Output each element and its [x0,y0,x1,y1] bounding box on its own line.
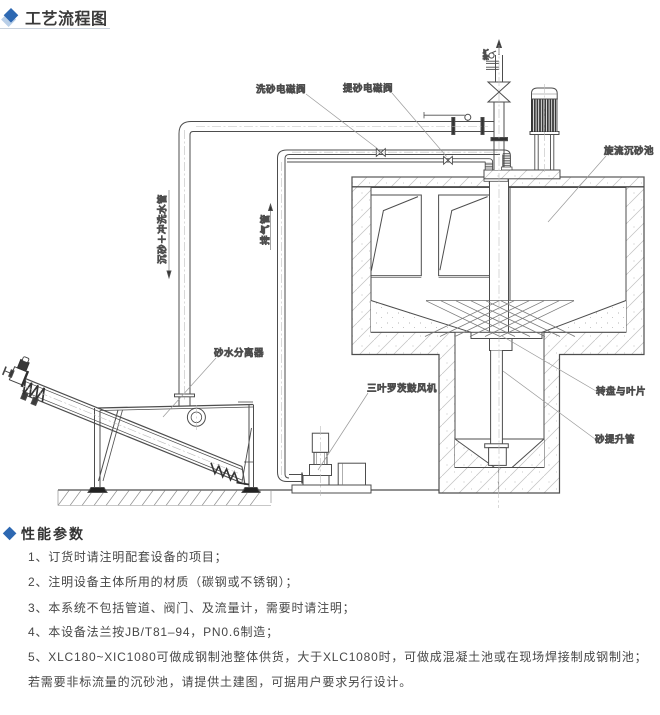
svg-text:沉砂＋冲洗水管: 沉砂＋冲洗水管 [157,194,169,264]
svg-text:砂水分离器: 砂水分离器 [214,347,264,359]
svg-text:转盘与叶片: 转盘与叶片 [596,386,646,398]
svg-text:洗砂电磁阀: 洗砂电磁阀 [256,84,306,96]
svg-text:砂提升管: 砂提升管 [595,434,635,446]
svg-text:提砂电磁阀: 提砂电磁阀 [343,83,393,95]
svg-text:排气管: 排气管 [260,213,272,245]
svg-text:排气: 排气 [482,48,490,60]
svg-text:旋流沉砂池: 旋流沉砂池 [604,145,654,157]
svg-text:三叶罗茨鼓风机: 三叶罗茨鼓风机 [367,383,437,395]
